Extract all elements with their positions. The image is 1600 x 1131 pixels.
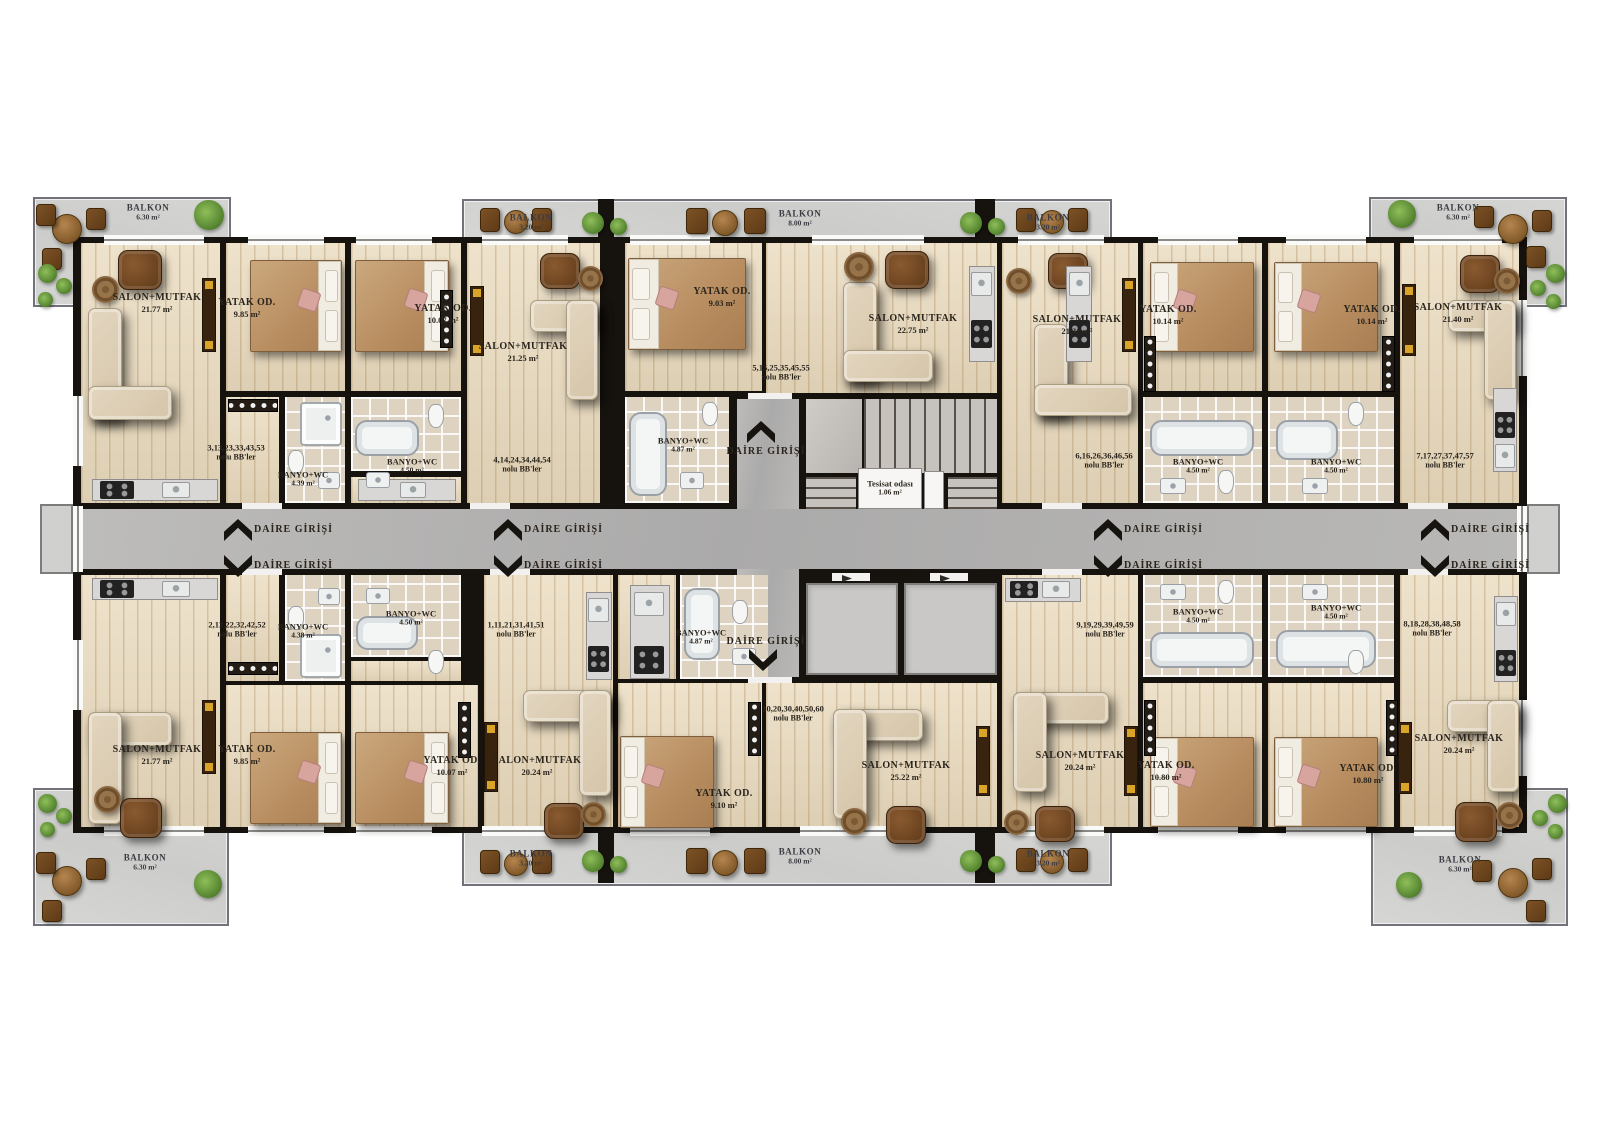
bathroom-label-area: 4.50 m² [1311, 613, 1361, 622]
kitchen-sink-icon [1069, 272, 1090, 296]
bed-pil [1154, 786, 1169, 818]
bathroom-label: BANYO+WC4.39 m² [278, 470, 328, 489]
room-label-text: YATAK OD. [1343, 304, 1400, 316]
room-label-text: SALON+MUTFAK [1033, 314, 1122, 326]
kitchen-nook-1 [351, 661, 461, 681]
outdoor-chair [86, 858, 106, 880]
room-label: YATAK OD.10.07 m² [414, 303, 471, 325]
wardrobe [228, 662, 278, 675]
window [482, 235, 568, 245]
bath-sink-icon [1302, 584, 1328, 600]
bathtub [1150, 420, 1254, 456]
balcony-label: BALKON6.30 m² [124, 852, 167, 871]
entrance-label: DAİRE GİRİŞİ [1451, 524, 1530, 536]
room-label: YATAK OD.10.14 m² [1139, 304, 1196, 326]
bath-sink-icon [318, 588, 340, 605]
plant-icon [1546, 294, 1561, 309]
bathroom-label-area: 4.87 m² [658, 446, 708, 455]
sofa [843, 350, 933, 382]
door-opening [930, 573, 968, 581]
unit-numbers-label: 5,15,25,35,45,55nolu BB'ler [752, 362, 809, 381]
balcony-label-area: 3.20 m² [510, 223, 553, 232]
rug-table [1004, 810, 1029, 835]
stair-door [924, 471, 944, 509]
room-label: YATAK OD.10.80 m² [1137, 760, 1194, 782]
room-label-area: 10.14 m² [1139, 316, 1196, 326]
room-label: YATAK OD.9.85 m² [218, 297, 275, 319]
unit-numbers-label-area: nolu BB'ler [1416, 460, 1473, 469]
balcony-label-area: 6.30 m² [124, 863, 167, 872]
kitchen-sink-icon [162, 581, 190, 597]
rug-table [1006, 268, 1032, 294]
window [1286, 826, 1366, 836]
bathroom-label: BANYO+WC4.50 m² [1311, 457, 1361, 476]
entrance-label-text: DAİRE GİRİŞİ [1124, 524, 1203, 536]
room-label-text: YATAK OD. [1139, 304, 1196, 316]
bed-pil [1278, 747, 1293, 779]
bath-sink-icon [366, 588, 390, 604]
rug-table [1494, 268, 1520, 294]
plant-icon [1532, 810, 1548, 826]
room-label-text: YATAK OD. [1137, 760, 1194, 772]
unit-numbers-label: 2,12,22,32,42,52nolu BB'ler [208, 619, 265, 638]
balcony-label: BALKON6.30 m² [1439, 854, 1482, 873]
plant-icon [194, 200, 224, 230]
stove-icon [100, 580, 134, 598]
armchair [1035, 806, 1075, 842]
plant-icon [1546, 264, 1565, 283]
outdoor-table [1498, 868, 1528, 898]
room-label: SALON+MUTFAK22.75 m² [869, 313, 958, 335]
outdoor-chair [744, 208, 766, 234]
room-label-area: 9.03 m² [693, 298, 750, 308]
bed-pil [1278, 311, 1293, 343]
entrance-label: DAİRE GİRİŞİ [254, 560, 333, 572]
entrance-label-text: DAİRE GİRİŞİ [727, 636, 806, 648]
unit-numbers-label-area: nolu BB'ler [207, 452, 264, 461]
room-label-area: 9.10 m² [695, 800, 752, 810]
room-label-text: YATAK OD. [414, 303, 471, 315]
outdoor-table [1498, 214, 1528, 244]
stair-steps-right [948, 477, 997, 509]
entrance-label-text: DAİRE GİRİŞİ [254, 560, 333, 572]
kitchen-sink-icon [400, 482, 426, 498]
toilet-icon [732, 600, 748, 624]
entrance-label-text: DAİRE GİRİŞİ [1451, 524, 1530, 536]
stove-icon [100, 481, 134, 499]
bathroom-label: BANYO+WC4.38 m² [278, 622, 328, 641]
unit-numbers-label-text: 5,15,25,35,45,55 [752, 362, 809, 372]
balcony-label-area: 6.30 m² [1437, 213, 1480, 222]
room-label-area: 10.80 m² [1137, 772, 1194, 782]
room-label-area: 21.25 m² [479, 353, 568, 363]
room-label-text: SALON+MUTFAK [113, 744, 202, 756]
window-ledge [1527, 504, 1560, 574]
outdoor-table [712, 850, 738, 876]
balcony-label: BALKON8.00 m² [779, 208, 822, 227]
outdoor-chair [744, 848, 766, 874]
balcony-label-area: 3.20 m² [1027, 223, 1070, 232]
bush-icon [610, 218, 627, 235]
stove-icon [588, 646, 609, 672]
sofa [579, 690, 611, 796]
kitchen-sink-icon [1042, 581, 1070, 598]
bathtub [684, 588, 720, 660]
unit-numbers-label-area: nolu BB'ler [1403, 628, 1460, 637]
bathroom-label: BANYO+WC4.87 m² [658, 436, 708, 455]
bed-pil [325, 742, 339, 774]
room-label-area: 10.07 m² [414, 315, 471, 325]
room-label-area: 9.85 m² [218, 756, 275, 766]
bed [1150, 737, 1254, 827]
room-label: YATAK OD.10.14 m² [1343, 304, 1400, 326]
outdoor-chair [480, 208, 500, 232]
room-label-text: YATAK OD. [1339, 763, 1396, 775]
outdoor-chair [686, 208, 708, 234]
outdoor-table [52, 866, 82, 896]
unit-numbers-label-area: nolu BB'ler [493, 464, 550, 473]
window [356, 826, 432, 836]
outdoor-chair [1532, 210, 1552, 232]
room-label: YATAK OD.10.80 m² [1339, 763, 1396, 785]
room-label-area: 21.40 m² [1414, 314, 1503, 324]
unit-numbers-label: 7,17,27,37,47,57nolu BB'ler [1416, 450, 1473, 469]
entrance-label-text: DAİRE GİRİŞİ [524, 524, 603, 536]
window [104, 235, 204, 245]
bathtub [355, 420, 419, 456]
bathtub [1276, 420, 1338, 460]
armchair [1455, 802, 1497, 842]
balcony-label: BALKON6.30 m² [1437, 202, 1480, 221]
bathtub [1150, 632, 1254, 668]
bed-pil [431, 782, 445, 814]
window [1286, 235, 1366, 245]
balcony-label-area: 3.20 m² [1027, 859, 1070, 868]
bush-icon [960, 212, 982, 234]
stove-icon [971, 320, 992, 348]
entrance-label: DAİRE GİRİŞİ [524, 560, 603, 572]
entrance-label: DAİRE GİRİŞİ [1451, 560, 1530, 572]
room-label-area: 21.31 m² [1033, 326, 1122, 336]
toilet-icon [1348, 650, 1364, 674]
room-label-area: 21.77 m² [113, 304, 202, 314]
wardrobe [458, 702, 471, 758]
unit-numbers-label-text: 2,12,22,32,42,52 [208, 619, 265, 629]
outdoor-table [712, 210, 738, 236]
bathroom-label: BANYO+WC4.50 m² [1173, 607, 1223, 626]
bush-icon [960, 850, 982, 872]
tv-unit [1124, 726, 1138, 796]
outdoor-chair [1532, 858, 1552, 880]
toilet-icon [428, 650, 444, 674]
room-label: SALON+MUTFAK21.77 m² [113, 744, 202, 766]
kitchen-sink-icon [588, 598, 609, 622]
stove-icon [1496, 650, 1516, 676]
unit-numbers-label: 9,19,29,39,49,59nolu BB'ler [1076, 619, 1133, 638]
utility-room-label: Tesisat odası1.06 m² [867, 479, 913, 498]
bathroom-label: BANYO+WC4.50 m² [1173, 457, 1223, 476]
outdoor-chair [42, 900, 62, 922]
room-label-area: 20.24 m² [1415, 745, 1504, 755]
bush-icon [582, 850, 604, 872]
plant-icon [1396, 872, 1422, 898]
stair-landing [806, 399, 862, 473]
room-label-text: YATAK OD. [218, 744, 275, 756]
room-label-text: YATAK OD. [693, 286, 750, 298]
plant-icon [38, 264, 57, 283]
bed-pil [624, 786, 638, 818]
window [1158, 826, 1238, 836]
rug-table [1496, 802, 1523, 829]
wardrobe [1382, 336, 1395, 392]
outdoor-chair [36, 204, 56, 226]
room-label: YATAK OD.9.03 m² [693, 286, 750, 308]
room-label-text: SALON+MUTFAK [113, 292, 202, 304]
elevator-2 [904, 583, 997, 675]
outdoor-chair [1068, 848, 1088, 872]
balcony-label-area: 6.30 m² [1439, 865, 1482, 874]
room-label-text: SALON+MUTFAK [479, 341, 568, 353]
plant-icon [1388, 200, 1416, 228]
bed-pil [325, 782, 339, 814]
wardrobe [1144, 700, 1156, 756]
unit-numbers-label-area: nolu BB'ler [1076, 629, 1133, 638]
bathroom-label-area: 4.50 m² [1311, 467, 1361, 476]
room-label-area: 9.85 m² [218, 309, 275, 319]
unit-numbers-label: 1,11,21,31,41,51nolu BB'ler [488, 619, 545, 638]
plant-icon [40, 822, 55, 837]
plant-icon [56, 278, 72, 294]
wardrobe [1386, 700, 1398, 756]
room-label: YATAK OD.9.10 m² [695, 788, 752, 810]
balcony-label: BALKON6.30 m² [127, 202, 170, 221]
unit-numbers-label-area: nolu BB'ler [762, 713, 824, 722]
entrance-label: DAİRE GİRİŞİ [254, 524, 333, 536]
unit-numbers-label-text: 6,16,26,36,46,56 [1075, 450, 1132, 460]
entrance-label: DAİRE GİRİŞİ [1124, 560, 1203, 572]
stair-steps-left [806, 477, 856, 509]
window [812, 235, 924, 245]
outdoor-chair [480, 850, 500, 874]
unit-numbers-label-area: nolu BB'ler [752, 372, 809, 381]
window [73, 396, 83, 466]
floor-plan: SALON+MUTFAK21.77 m²YATAK OD.9.85 m²YATA… [0, 0, 1600, 1131]
entrance-label: DAİRE GİRİŞİ [727, 636, 806, 648]
room-label-text: SALON+MUTFAK [1414, 302, 1503, 314]
unit-numbers-label: 4,14,24,34,44,54nolu BB'ler [493, 454, 550, 473]
unit-numbers-label: 3,13,23,33,43,53nolu BB'ler [207, 442, 264, 461]
entrance-label-text: DAİRE GİRİŞİ [254, 524, 333, 536]
room-label: YATAK OD.10.07 m² [423, 755, 480, 777]
door-opening [748, 677, 792, 683]
bathroom-label-area: 4.50 m² [1173, 467, 1223, 476]
bathroom-label-area: 4.38 m² [278, 632, 328, 641]
room-label-area: 10.80 m² [1339, 775, 1396, 785]
bathroom-label-area: 4.50 m² [386, 619, 436, 628]
bed-pil [632, 268, 649, 300]
room-label: SALON+MUTFAK21.31 m² [1033, 314, 1122, 336]
balcony-label-area: 6.30 m² [127, 213, 170, 222]
door-opening [748, 393, 792, 399]
armchair [1460, 255, 1500, 293]
bath-sink-icon [680, 472, 704, 489]
window [73, 506, 83, 572]
room-label-area: 22.75 m² [869, 325, 958, 335]
balcony-label: BALKON8.00 m² [779, 846, 822, 865]
room-label-area: 10.14 m² [1343, 316, 1400, 326]
door-opening [470, 503, 510, 509]
rug-table [841, 808, 868, 835]
unit-numbers-label: 6,16,26,36,46,56nolu BB'ler [1075, 450, 1132, 469]
entrance-label-text: DAİRE GİRİŞİ [524, 560, 603, 572]
bathroom-label: BANYO+WC4.87 m² [676, 628, 726, 647]
armchair [886, 806, 926, 844]
unit-numbers-label-area: nolu BB'ler [208, 629, 265, 638]
kitchen-sink-icon [1495, 444, 1515, 468]
stove-icon [634, 646, 664, 674]
room-label-text: YATAK OD. [423, 755, 480, 767]
plant-icon [194, 870, 222, 898]
armchair [118, 250, 162, 290]
entrance-label: DAİRE GİRİŞİ [524, 524, 603, 536]
bathroom-label-area: 4.39 m² [278, 480, 328, 489]
room-label-text: SALON+MUTFAK [493, 755, 582, 767]
window [356, 235, 432, 245]
kitchen-sink-icon [162, 482, 190, 498]
armchair [120, 798, 162, 838]
room-label-text: SALON+MUTFAK [1415, 733, 1504, 745]
outdoor-chair [36, 852, 56, 874]
rug-table [581, 802, 606, 827]
entrance-label: DAİRE GİRİŞİ [727, 446, 806, 458]
unit-numbers-label-text: 7,17,27,37,47,57 [1416, 450, 1473, 460]
entrance-label-text: DAİRE GİRİŞİ [727, 446, 806, 458]
kitchen-sink-icon [1496, 602, 1516, 626]
outdoor-chair [686, 848, 708, 874]
bed [620, 736, 714, 828]
unit-numbers-label-text: 10,20,30,40,50,60 [762, 703, 824, 713]
unit-numbers-label-area: nolu BB'ler [488, 629, 545, 638]
balcony-label-area: 8.00 m² [779, 219, 822, 228]
bathroom-label-area: 4.50 m² [387, 467, 437, 476]
room-label-area: 21.77 m² [113, 756, 202, 766]
sofa [1034, 384, 1132, 416]
tv-unit [202, 700, 216, 774]
room-label: SALON+MUTFAK21.25 m² [479, 341, 568, 363]
window [248, 235, 324, 245]
unit-numbers-label: 8,18,28,38,48,58nolu BB'ler [1403, 618, 1460, 637]
bathroom-label: BANYO+WC4.50 m² [387, 457, 437, 476]
tv-unit [1398, 722, 1412, 794]
wardrobe [748, 702, 761, 756]
bathroom-label: BANYO+WC4.50 m² [386, 609, 436, 628]
balcony-label: BALKON3.20 m² [1027, 848, 1070, 867]
outdoor-chair [86, 208, 106, 230]
room-label: YATAK OD.9.85 m² [218, 744, 275, 766]
rug-table [844, 252, 874, 282]
armchair [885, 251, 929, 289]
room-label: SALON+MUTFAK20.24 m² [1415, 733, 1504, 755]
entrance-label-text: DAİRE GİRİŞİ [1124, 560, 1203, 572]
bush-icon [988, 856, 1005, 873]
kitchen-sink-icon [634, 592, 664, 616]
room-label-text: SALON+MUTFAK [869, 313, 958, 325]
window [1158, 235, 1238, 245]
room-label: SALON+MUTFAK21.40 m² [1414, 302, 1503, 324]
bed-pil [632, 308, 649, 340]
balcony-label: BALKON3.20 m² [1027, 212, 1070, 231]
room-label-area: 20.24 m² [493, 767, 582, 777]
plant-icon [38, 794, 57, 813]
sofa [88, 386, 172, 420]
window [73, 640, 83, 710]
stair-flight [864, 399, 997, 473]
outdoor-chair [1526, 900, 1546, 922]
unit-numbers-label-area: nolu BB'ler [1075, 460, 1132, 469]
door-opening [832, 573, 870, 581]
sofa [566, 300, 598, 400]
bath-sink-icon [1302, 478, 1328, 494]
window [1018, 235, 1104, 245]
bed-pil [624, 746, 638, 778]
rug-table [94, 786, 121, 813]
sofa [1013, 692, 1047, 792]
bathroom-label-area: 4.50 m² [1173, 617, 1223, 626]
shower-tray [300, 402, 342, 446]
wardrobe [1144, 336, 1156, 392]
window [1414, 235, 1502, 245]
outdoor-chair [1526, 246, 1546, 268]
bush-icon [582, 212, 604, 234]
room-label-text: YATAK OD. [218, 297, 275, 309]
bath-sink-icon [1160, 584, 1186, 600]
wardrobe [228, 399, 278, 412]
armchair [540, 253, 580, 289]
bed [355, 732, 449, 824]
plant-icon [38, 292, 53, 307]
room-label: SALON+MUTFAK25.22 m² [862, 760, 951, 782]
bush-icon [988, 218, 1005, 235]
door-opening [1042, 569, 1082, 575]
plant-icon [1548, 794, 1567, 813]
plant-icon [56, 808, 72, 824]
bathroom-label: BANYO+WC4.50 m² [1311, 603, 1361, 622]
window [630, 235, 710, 245]
stove-icon [1010, 581, 1038, 598]
armchair [544, 803, 584, 839]
outdoor-chair [1068, 208, 1088, 232]
unit-numbers-label-text: 4,14,24,34,44,54 [493, 454, 550, 464]
balcony-label-area: 3.20 m² [510, 859, 553, 868]
toilet-icon [702, 402, 718, 426]
door-opening [242, 503, 282, 509]
unit-numbers-label-text: 9,19,29,39,49,59 [1076, 619, 1133, 629]
tv-unit [202, 278, 216, 352]
window-ledge [40, 504, 73, 574]
unit-numbers-label-text: 3,13,23,33,43,53 [207, 442, 264, 452]
bed-pil [1278, 786, 1293, 818]
elevator-1 [806, 583, 898, 675]
entrance-label-text: DAİRE GİRİŞİ [1451, 560, 1530, 572]
window [248, 826, 324, 836]
window [1517, 300, 1527, 376]
room-label-area: 25.22 m² [862, 772, 951, 782]
balcony-label: BALKON3.20 m² [510, 848, 553, 867]
outdoor-table [52, 214, 82, 244]
toilet-icon [1348, 402, 1364, 426]
room-label: SALON+MUTFAK20.24 m² [1036, 750, 1125, 772]
toilet-icon [428, 404, 444, 428]
